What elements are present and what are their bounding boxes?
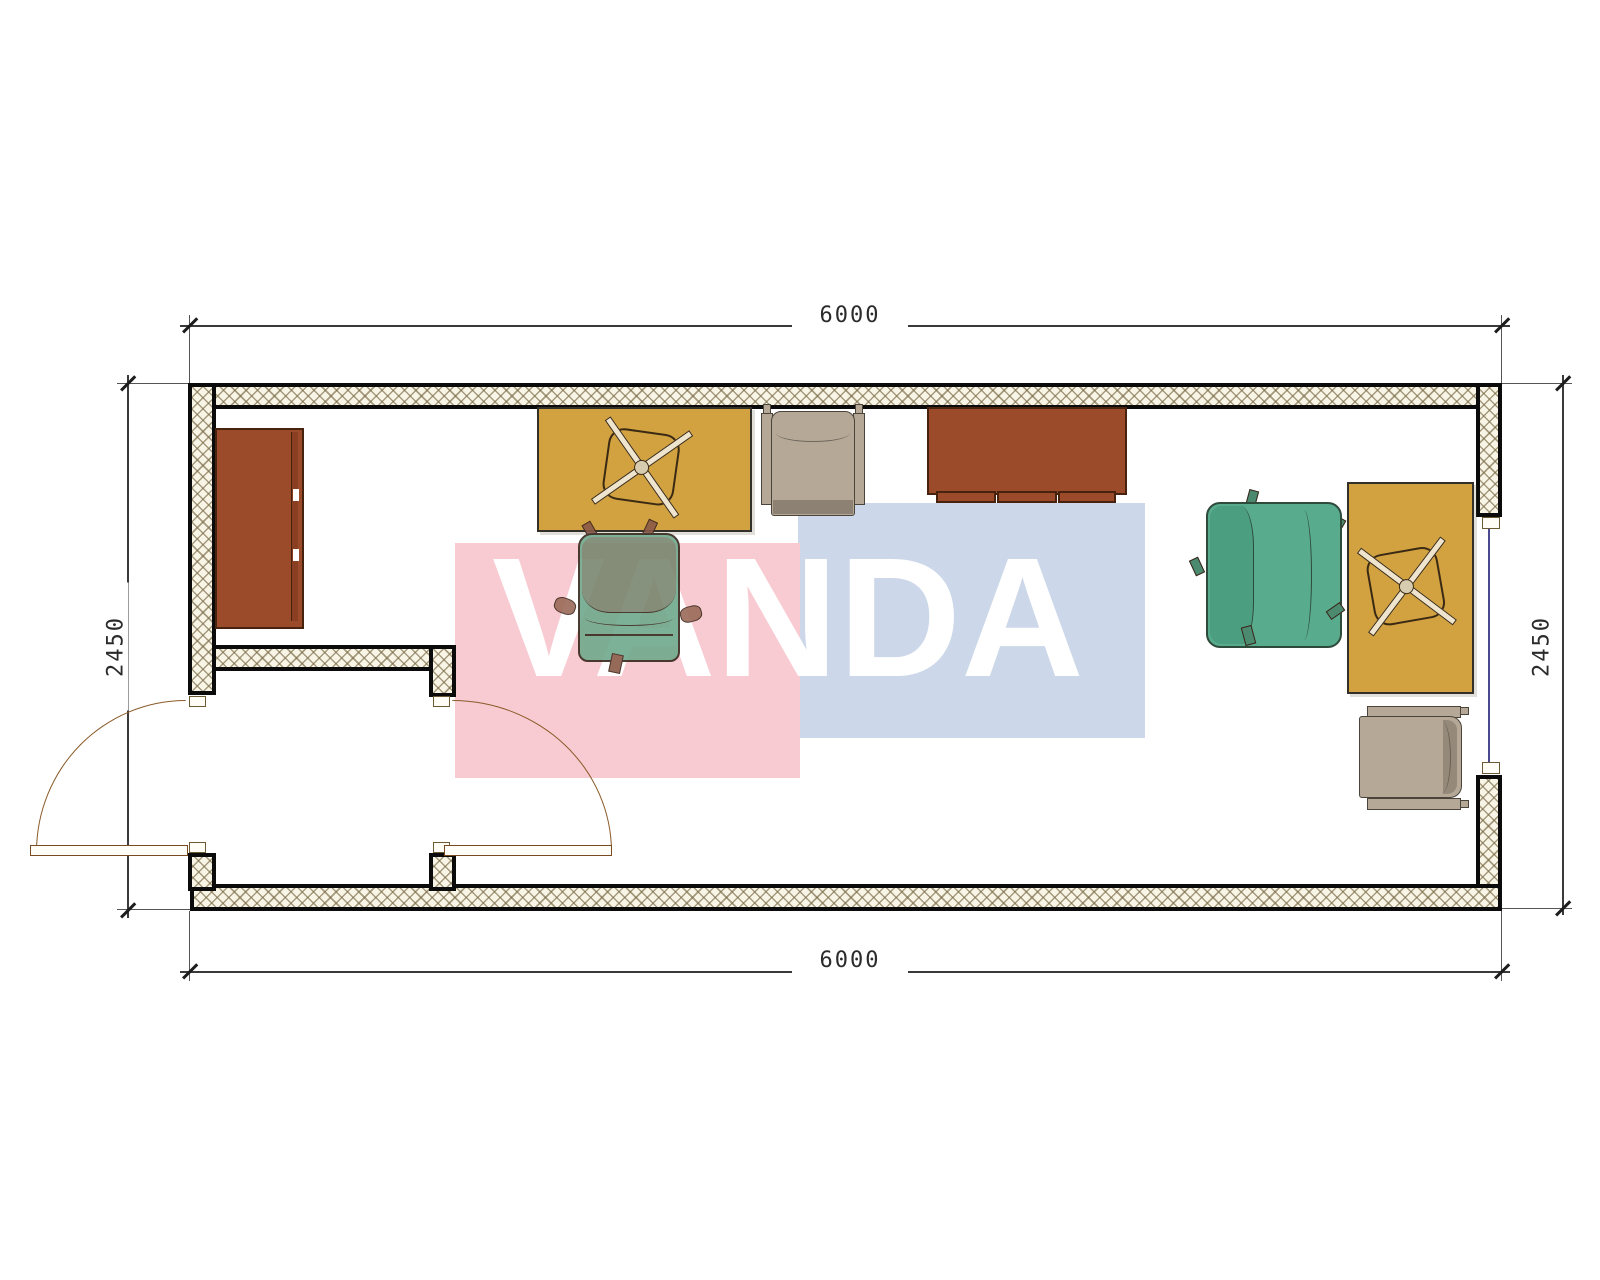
interior-door-leaf xyxy=(444,845,612,856)
dim-right-label: 2450 xyxy=(1530,583,1555,711)
chair-armrest-left xyxy=(552,595,578,618)
chair-seat-line xyxy=(1296,510,1312,640)
vestibule-partition xyxy=(212,645,434,671)
dim-bottom-label: 6000 xyxy=(792,948,908,973)
dim-left-label: 2450 xyxy=(104,583,129,711)
exterior-door-leaf xyxy=(30,845,188,856)
chair-caster xyxy=(608,653,624,674)
tall-cabinet-front-edge xyxy=(291,432,298,621)
armchair-armrest-bottom xyxy=(1367,798,1461,810)
window-glass-line xyxy=(1488,529,1490,763)
chair-back-cushion xyxy=(582,537,676,613)
chair-armrest-right xyxy=(678,603,703,624)
chair-seat-line xyxy=(585,610,673,626)
exterior-door-jamb-top xyxy=(189,696,206,707)
tall-cabinet-handle-1 xyxy=(293,489,299,501)
exterior-door-swing-arc xyxy=(36,700,186,852)
sideboard-base xyxy=(936,491,996,503)
window-jamb-top xyxy=(1482,517,1500,529)
window-jamb-bottom xyxy=(1482,762,1500,774)
door-post-bottom-left xyxy=(188,853,216,891)
wall-bottom xyxy=(190,884,1502,911)
chair-caster xyxy=(1189,557,1205,577)
armchair-seat-shadow xyxy=(773,500,853,514)
vestibule-partition-stub xyxy=(429,645,456,697)
interior-door-jamb-top xyxy=(433,696,450,707)
tall-cabinet xyxy=(215,428,304,629)
wall-right-upper xyxy=(1476,383,1502,517)
swivel-chair-symbol-1 xyxy=(586,412,699,525)
tall-cabinet-handle-2 xyxy=(293,549,299,561)
armchair-seat-shadow xyxy=(1443,720,1457,794)
swivel-chair-symbol-2 xyxy=(1349,529,1465,645)
chair-back-cushion xyxy=(1210,506,1254,644)
task-chair-1 xyxy=(552,518,704,676)
dim-right-line xyxy=(1562,375,1564,915)
visitor-armchair-1 xyxy=(756,400,871,525)
dim-top-label: 6000 xyxy=(792,303,908,328)
armchair-back-line xyxy=(776,424,850,442)
sideboard-base xyxy=(997,491,1057,503)
exterior-door-jamb-bottom xyxy=(189,842,206,853)
door-post-bottom-right xyxy=(429,853,456,891)
visitor-armchair-2 xyxy=(1355,700,1473,818)
chair-seat-line xyxy=(585,634,673,636)
sideboard-base xyxy=(1058,491,1116,503)
sideboard xyxy=(927,407,1127,495)
task-chair-2 xyxy=(1190,488,1350,656)
floor-plan-canvas: VANDA 6000 6000 2450 2450 xyxy=(0,0,1600,1280)
